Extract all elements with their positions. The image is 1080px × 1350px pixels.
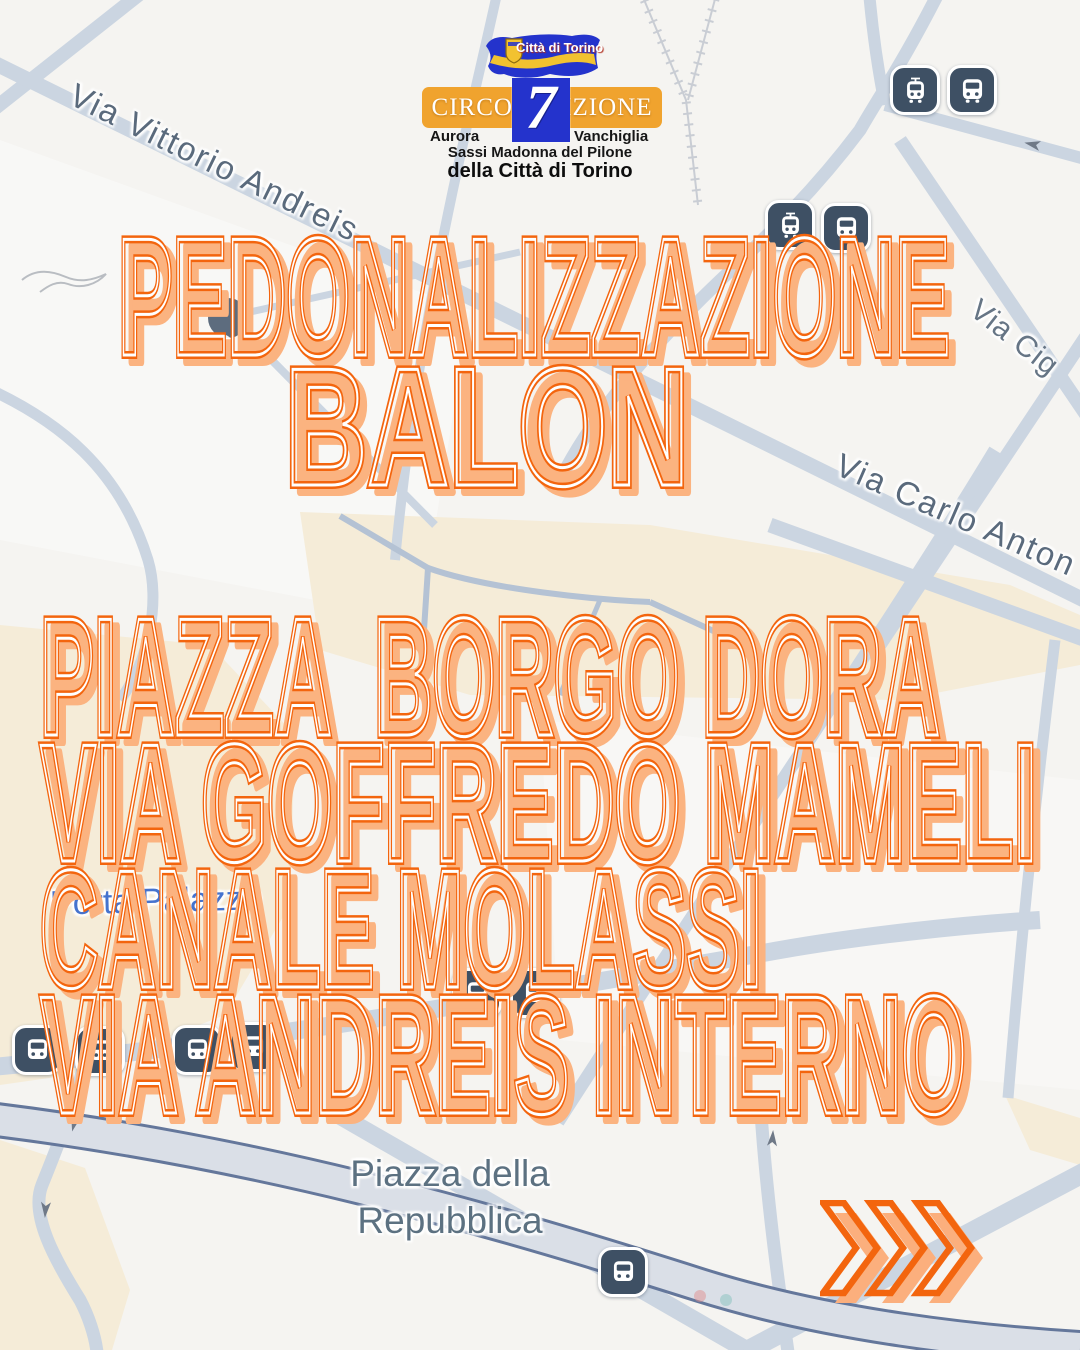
- headline-balon: BALON BALON BALON: [282, 366, 712, 516]
- district-vanchiglia-label: Vanchiglia: [574, 128, 648, 145]
- bus-stop-icon: [598, 1247, 648, 1297]
- tram-stop-icon: [890, 65, 940, 115]
- next-chevrons-icon: [820, 1200, 1000, 1308]
- post-canvas: Via Vittorio Andreis Via Cig Via Carlo A…: [0, 0, 1080, 1350]
- circoscrizione7-logo: Città di Torino CIRCOSCRIZIONE 7 Aurora …: [400, 28, 680, 188]
- district-number: 7: [526, 77, 557, 139]
- district-sassi-label: Sassi Madonna del Pilone: [400, 144, 680, 161]
- district-aurora-label: Aurora: [430, 128, 479, 145]
- map-label-piazza-repubblica: Piazza della Repubblica: [292, 1150, 608, 1244]
- svg-text:BALON: BALON: [285, 333, 689, 521]
- district-number-box: 7: [512, 78, 570, 142]
- street-line-via-andreis-interno: VIA ANDREIS INTERNO VIA ANDREIS INTERNO …: [37, 994, 997, 1144]
- bus-stop-icon: [947, 65, 997, 115]
- logo-subtitle: della Città di Torino: [400, 160, 680, 183]
- flag-label: Città di Torino: [516, 40, 603, 55]
- svg-text:VIA ANDREIS INTERNO: VIA ANDREIS INTERNO: [40, 961, 966, 1149]
